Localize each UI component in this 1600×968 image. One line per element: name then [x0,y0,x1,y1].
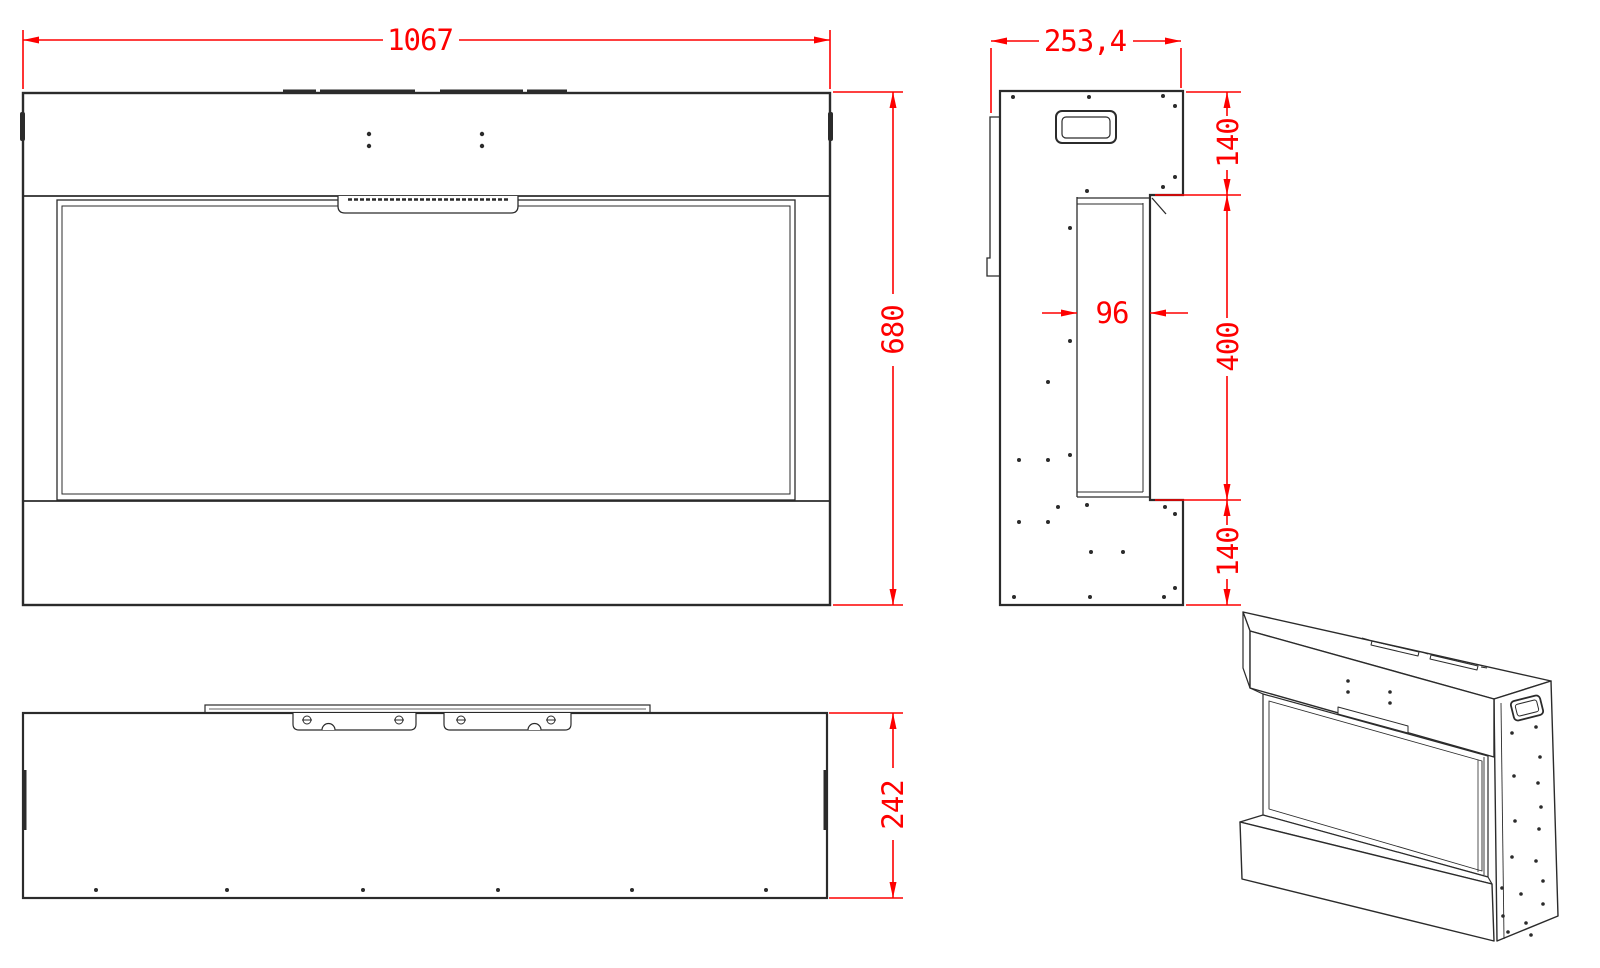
dim-plan-depth: 242 [876,780,910,829]
dim-side-bottom-section: 140 [1211,527,1245,576]
technical-drawing-sheet: 1067 680 253,4 96 140 400 140 242 [0,0,1600,968]
dimension-lines: 1067 680 253,4 96 140 400 140 242 [23,23,1245,898]
dim-front-height: 680 [876,305,910,354]
dim-glass-channel-width: 96 [1096,296,1129,330]
side-flange [987,117,1000,276]
drawing-canvas: 1067 680 253,4 96 140 400 140 242 [0,0,1600,968]
front-view [20,90,833,606]
plan-view [23,705,827,898]
side-screw-holes [1011,94,1177,599]
dim-front-width: 1067 [387,23,453,57]
dim-side-depth: 253,4 [1044,24,1127,58]
front-left-tab [20,112,25,141]
side-view [987,91,1183,605]
dim-side-top-section: 140 [1211,118,1245,167]
dim-side-glass-section: 400 [1211,322,1245,371]
plan-bracket-plates [293,713,571,730]
front-screw-holes [367,132,484,148]
isometric-view [1240,612,1558,941]
plan-screw-holes [94,888,768,892]
side-glass-channel [1077,197,1166,497]
front-window-frame [57,200,795,500]
front-right-tab [828,112,833,141]
